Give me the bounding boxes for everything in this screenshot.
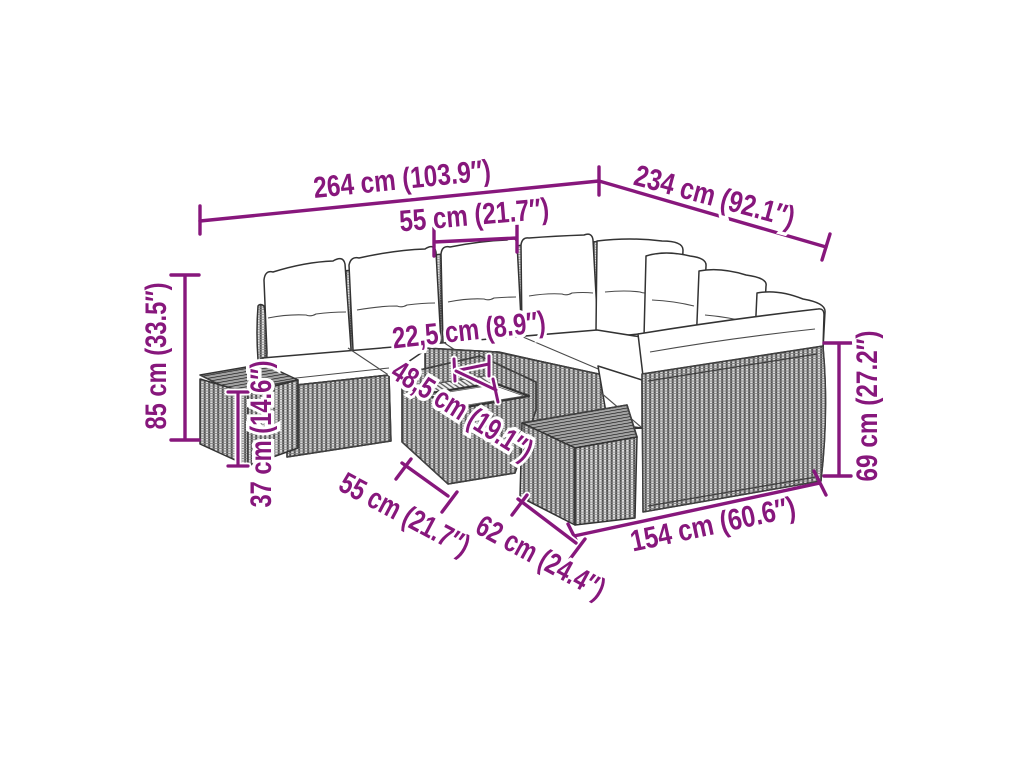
svg-text:85 cm (33.5″): 85 cm (33.5″): [140, 283, 173, 430]
svg-text:69 cm (27.2″): 69 cm (27.2″): [851, 331, 884, 482]
svg-text:37 cm (14.6″): 37 cm (14.6″): [245, 361, 278, 508]
